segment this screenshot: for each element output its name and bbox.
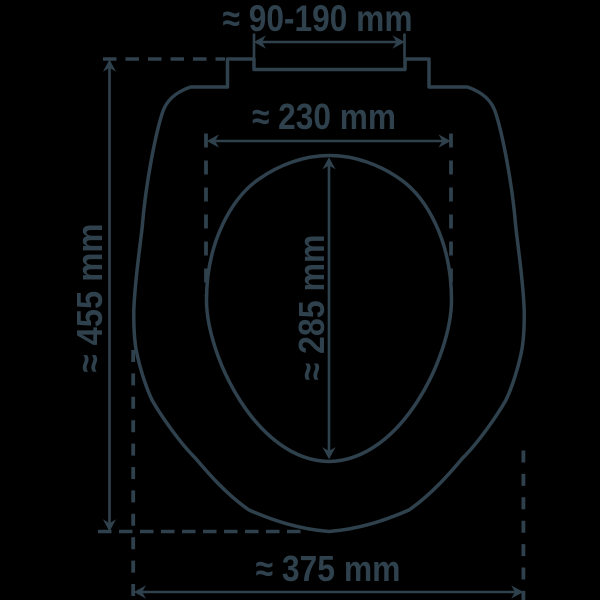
svg-text:≈ 455 mm: ≈ 455 mm <box>69 224 110 373</box>
svg-text:≈ 285 mm: ≈ 285 mm <box>291 235 332 381</box>
svg-text:≈ 230 mm: ≈ 230 mm <box>252 96 396 137</box>
svg-text:≈ 375 mm: ≈ 375 mm <box>256 548 401 589</box>
svg-text:≈ 90-190 mm: ≈ 90-190 mm <box>223 0 413 39</box>
